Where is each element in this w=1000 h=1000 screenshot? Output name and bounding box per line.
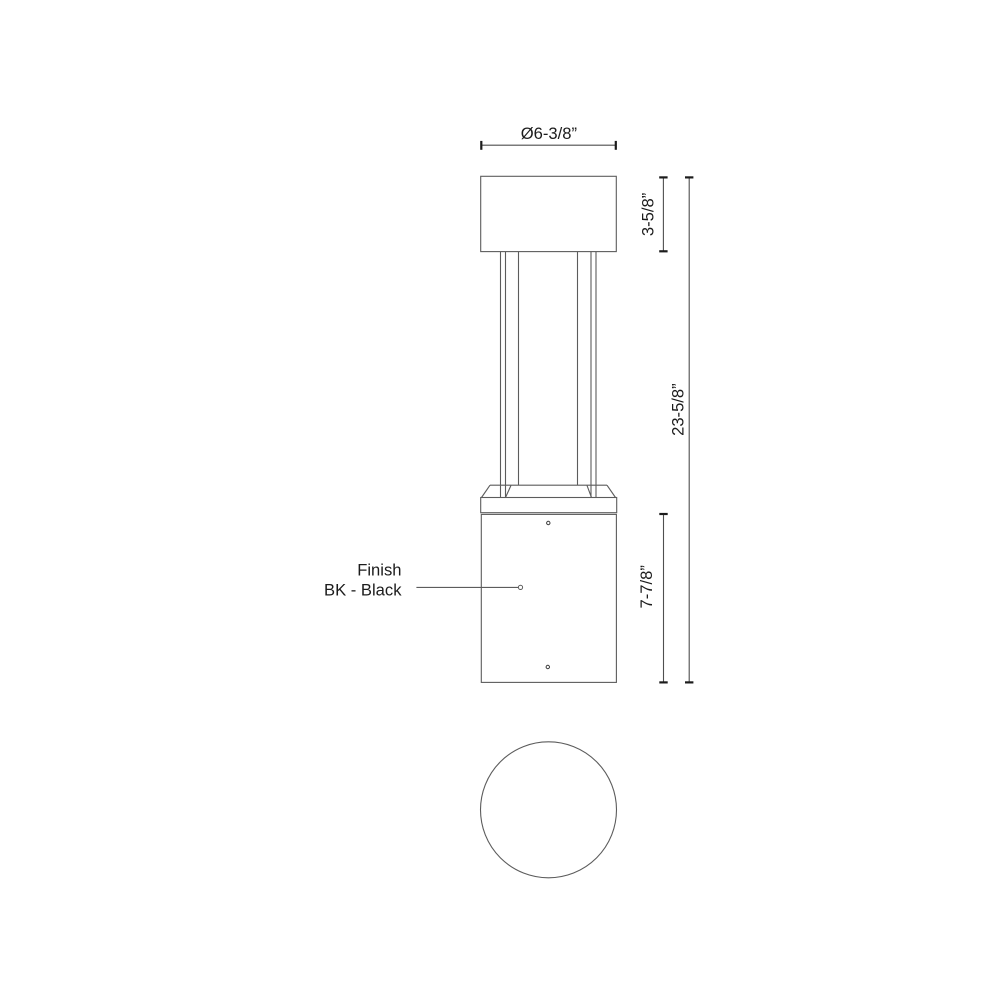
svg-text:BK - Black: BK - Black [324,581,402,600]
svg-text:7-7/8”: 7-7/8” [637,565,656,608]
svg-text:Finish: Finish [357,560,401,579]
svg-text:Ø6-3/8”: Ø6-3/8” [521,124,577,143]
svg-text:23-5/8”: 23-5/8” [669,383,688,436]
svg-text:3-5/8”: 3-5/8” [639,193,658,236]
